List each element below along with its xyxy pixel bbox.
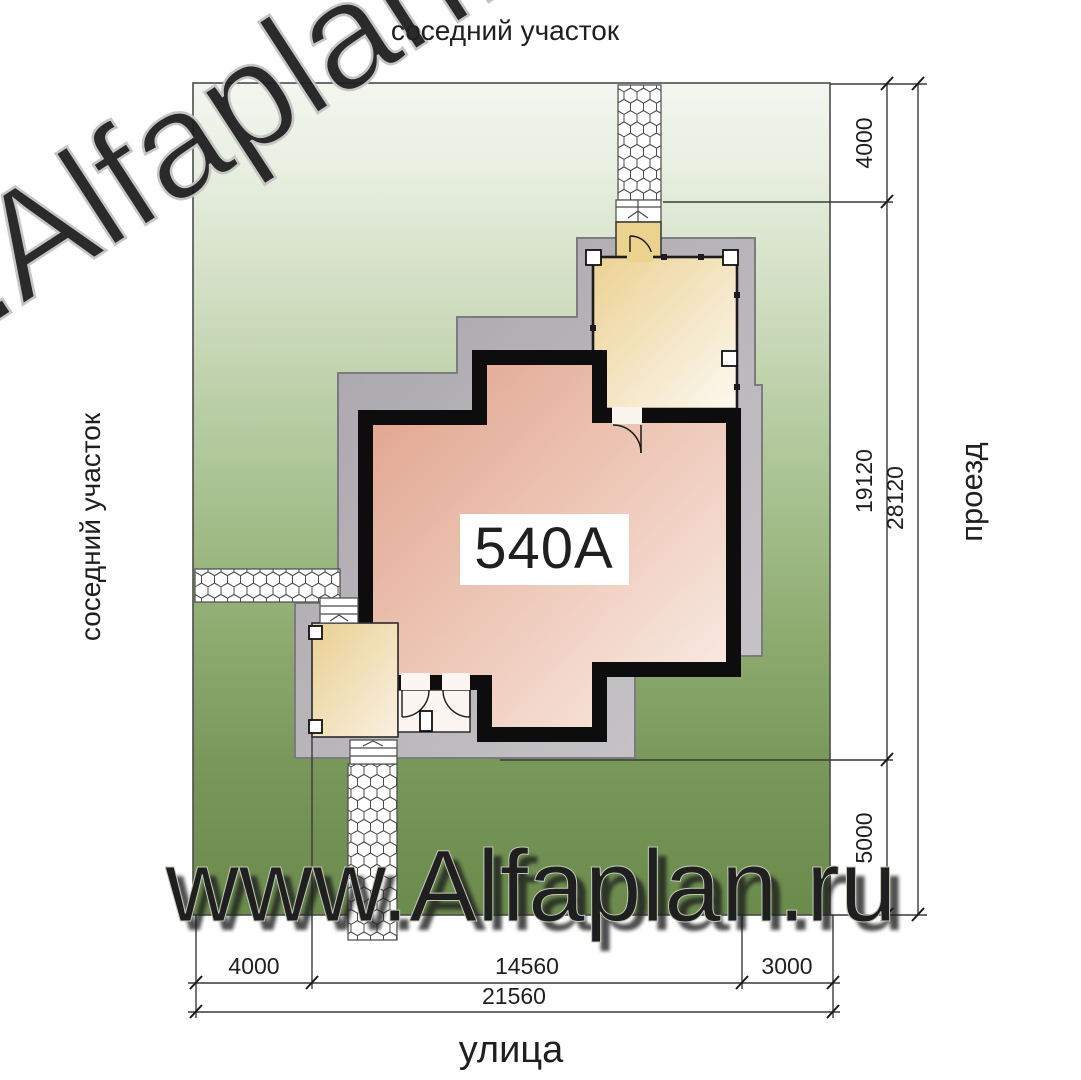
plan-number-badge: 540A — [460, 514, 629, 585]
veranda-window — [722, 351, 737, 366]
bottom-watermark: www.Alfaplan.ru www.Alfaplan.ru — [164, 829, 905, 952]
porch — [309, 623, 398, 737]
veranda-corner-column — [586, 250, 601, 265]
dim-right-28120: 28120 — [882, 466, 908, 530]
steps-top-entry — [616, 200, 661, 222]
porch-corner-column — [309, 626, 322, 639]
dim-right-19120: 19120 — [851, 449, 877, 513]
label-neighbor-top: соседний участок — [391, 15, 620, 46]
dim-bottom-21560: 21560 — [482, 983, 546, 1009]
veranda — [586, 250, 740, 409]
site-plan-drawing: www.Alfaplan.ru — [0, 0, 1081, 1080]
label-neighbor-left: соседний участок — [75, 412, 106, 641]
steps-porch-bottom — [350, 740, 397, 764]
label-driveway-right: проезд — [954, 442, 989, 541]
site-plan-page: www.Alfaplan.ru — [0, 0, 1081, 1080]
dim-right-4000: 4000 — [851, 117, 877, 168]
porch-corner-column — [309, 720, 322, 733]
label-street-bottom: улица — [459, 1029, 564, 1071]
walkway-left — [195, 569, 340, 602]
veranda-door-opening — [627, 252, 653, 262]
dim-bottom-4000: 4000 — [228, 953, 279, 979]
plan-number: 540A — [474, 516, 613, 581]
steps-porch-top — [320, 598, 358, 623]
hallway-wall-stub — [420, 711, 432, 731]
dim-bottom-14560: 14560 — [495, 953, 559, 979]
veranda-corner-column — [723, 250, 738, 265]
bottom-watermark-text: www.Alfaplan.ru — [164, 829, 896, 943]
walkway-top — [618, 85, 661, 200]
dim-bottom-3000: 3000 — [761, 953, 812, 979]
